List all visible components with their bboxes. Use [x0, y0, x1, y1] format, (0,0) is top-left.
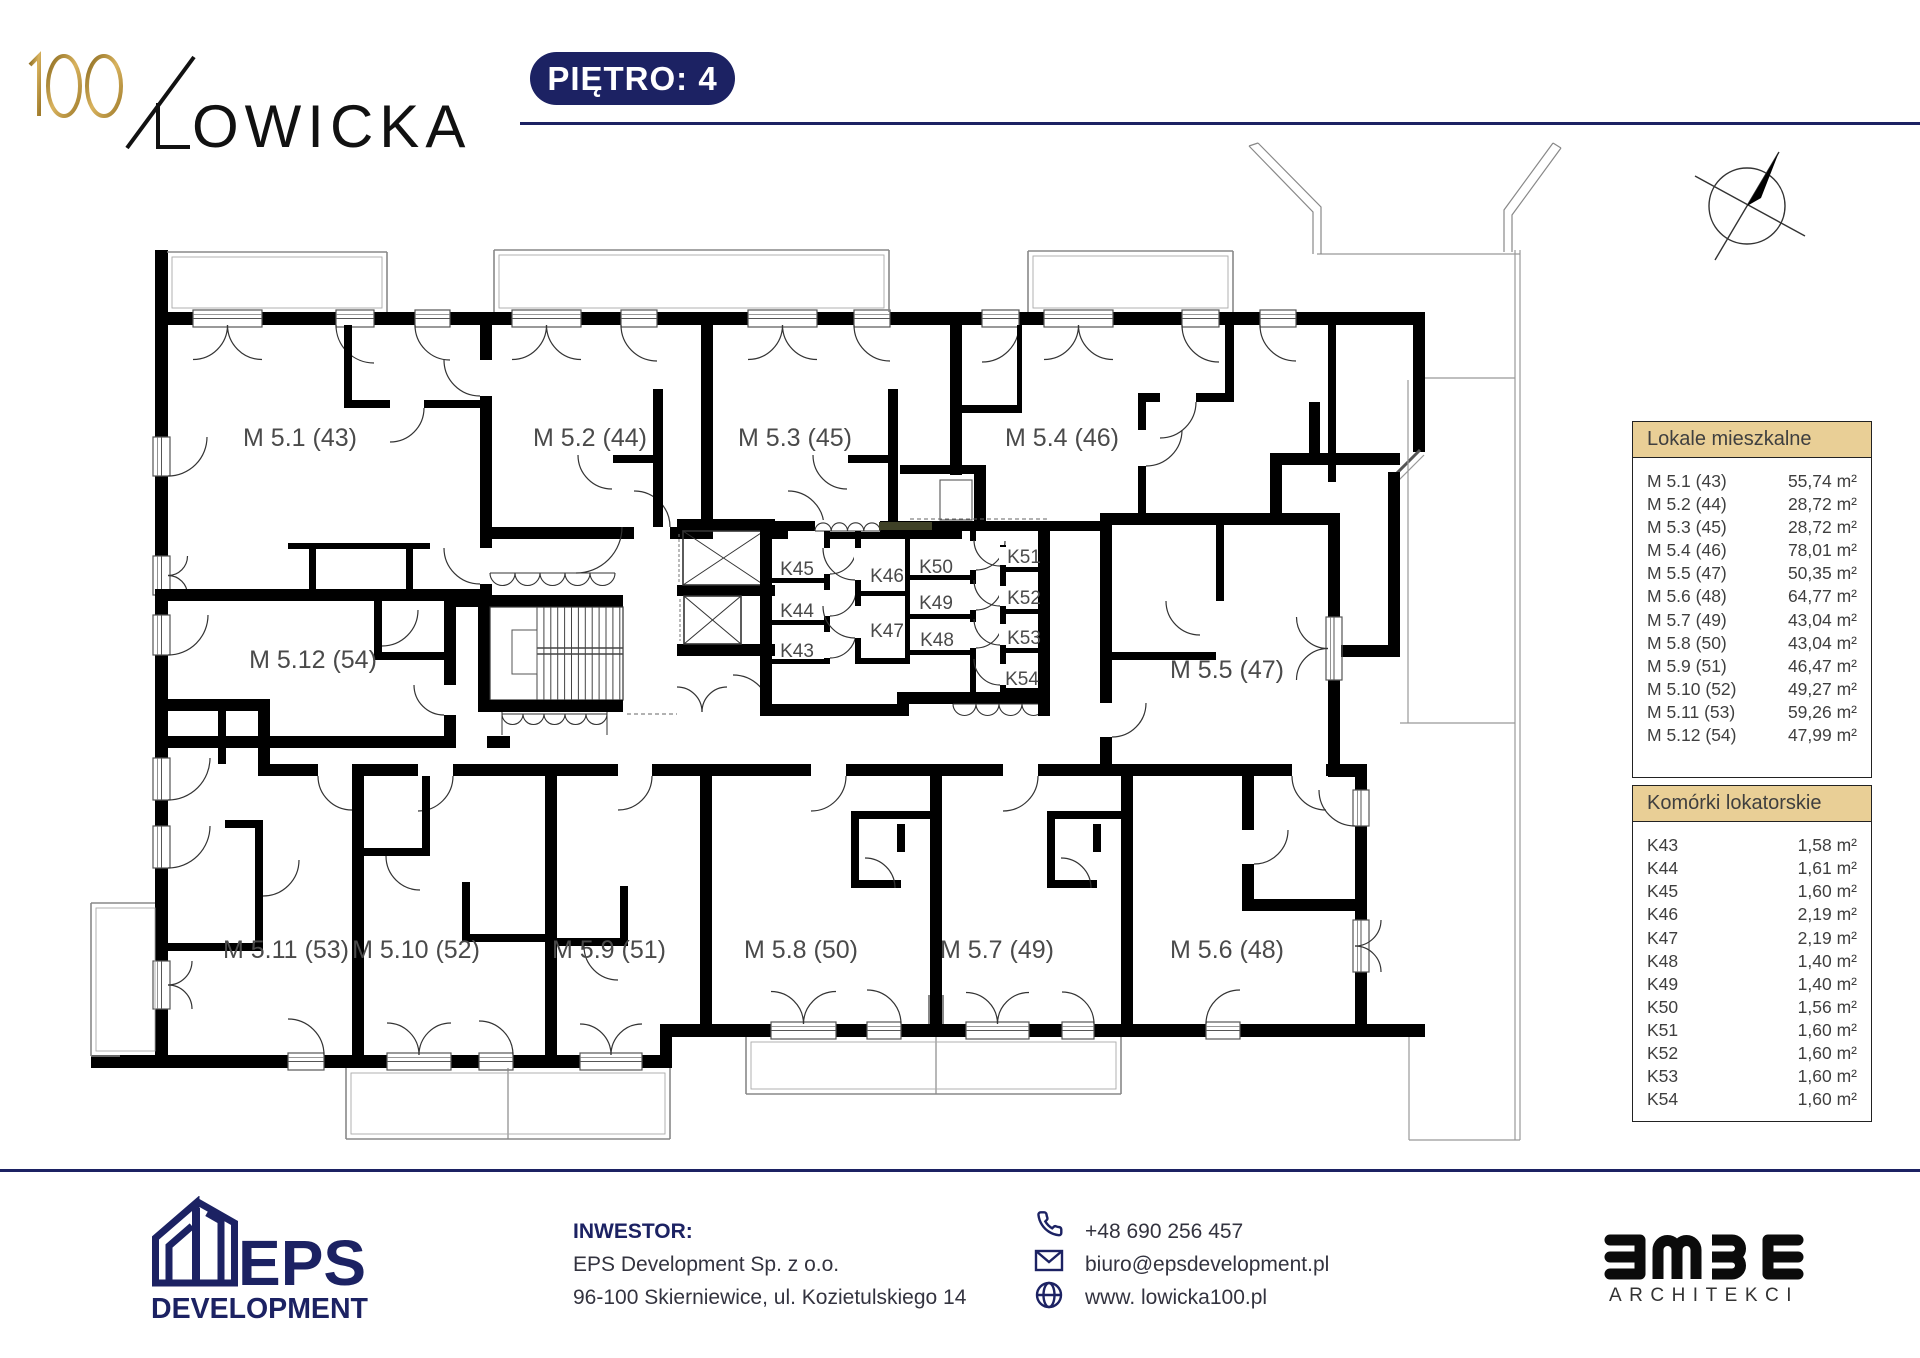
- svg-text:M 5.11 (53): M 5.11 (53): [223, 936, 349, 964]
- svg-text:M 5.7 (49): M 5.7 (49): [940, 936, 1054, 964]
- svg-text:K54: K54: [1005, 669, 1039, 690]
- svg-text:M 5.6 (48): M 5.6 (48): [1170, 936, 1284, 964]
- svg-text:K43: K43: [780, 641, 814, 662]
- svg-text:M 5.10 (52): M 5.10 (52): [352, 936, 480, 964]
- svg-text:K46: K46: [870, 566, 904, 587]
- svg-text:K47: K47: [870, 621, 904, 642]
- svg-text:M 5.5 (47): M 5.5 (47): [1170, 656, 1284, 684]
- svg-text:K49: K49: [919, 593, 953, 614]
- svg-text:K52: K52: [1007, 588, 1041, 609]
- svg-text:K51: K51: [1007, 547, 1041, 568]
- svg-text:M 5.12 (54): M 5.12 (54): [249, 646, 377, 674]
- svg-text:ARCHITEKCI: ARCHITEKCI: [1609, 1285, 1799, 1306]
- svg-text:M 5.2 (44): M 5.2 (44): [533, 424, 647, 452]
- svg-text:M 5.9 (51): M 5.9 (51): [552, 936, 666, 964]
- svg-text:M 5.1 (43): M 5.1 (43): [243, 424, 357, 452]
- svg-text:M 5.3 (45): M 5.3 (45): [738, 424, 852, 452]
- svg-text:K44: K44: [780, 601, 814, 622]
- svg-text:M 5.8 (50): M 5.8 (50): [744, 936, 858, 964]
- svg-text:K53: K53: [1007, 628, 1041, 649]
- svg-text:K48: K48: [920, 630, 954, 651]
- svg-text:M 5.4 (46): M 5.4 (46): [1005, 424, 1119, 452]
- svg-text:K45: K45: [780, 559, 814, 580]
- svg-text:K50: K50: [919, 557, 953, 578]
